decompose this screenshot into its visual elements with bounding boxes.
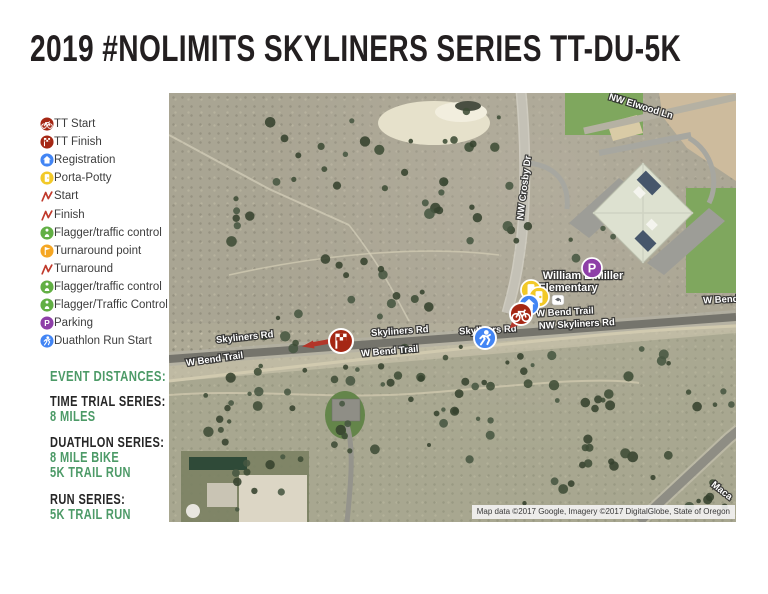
page-title: 2019 #NOLIMITS SKYLINERS SERIES TT-DU-5K — [30, 30, 768, 67]
legend-item: Start — [40, 187, 170, 205]
legend-item-label: Flagger/traffic control — [54, 227, 162, 239]
person-icon — [40, 280, 54, 294]
legend-item-label: TT Start — [54, 118, 95, 130]
legend-item-label: Turnaround point — [54, 245, 141, 257]
legend-item-label: Flagger/traffic control — [54, 281, 162, 293]
flag-icon — [40, 244, 54, 258]
legend-item-label: Finish — [54, 209, 85, 221]
school-poi-icon — [552, 295, 564, 305]
map-label: Skyliners Rd — [216, 329, 275, 346]
run-section: RUN SERIES: 5K TRAIL RUN — [50, 493, 180, 523]
legend-item: Flagger/Traffic Control — [40, 296, 170, 314]
runner-icon — [40, 334, 54, 348]
zigzag-icon — [40, 189, 54, 203]
legend-item-label: Porta-Potty — [54, 172, 112, 184]
tt-finish-marker — [329, 329, 353, 353]
legend-item-label: Registration — [54, 154, 115, 166]
legend-item: Flagger/traffic control — [40, 224, 170, 242]
checkered-flag-icon — [40, 135, 54, 149]
legend-item: Registration — [40, 151, 170, 169]
header: 2019 #NOLIMITS SKYLINERS SERIES TT-DU-5K… — [30, 28, 740, 68]
legend-item: Duathlon Run Start — [40, 332, 170, 350]
person-icon — [40, 226, 54, 240]
event-distances: EVENT DISTANCES: TIME TRIAL SERIES: 8 MI… — [50, 369, 180, 534]
bike-icon — [40, 117, 54, 131]
zigzag-icon — [40, 208, 54, 222]
legend-item-label: Duathlon Run Start — [54, 335, 152, 347]
porta-potty-icon — [40, 171, 54, 185]
satellite-map: NW Elwood LnNW Crosby DrSkyliners RdSkyl… — [169, 93, 736, 522]
svg-text:P: P — [588, 262, 597, 276]
legend-item: PParking — [40, 314, 170, 332]
tt-start-marker — [510, 303, 532, 325]
house-icon — [40, 153, 54, 167]
legend-item-label: Turnaround — [54, 263, 113, 275]
duathlon-section: DUATHLON SERIES: 8 MILE BIKE 5K TRAIL RU… — [50, 436, 180, 482]
legend-item: Turnaround — [40, 260, 170, 278]
duathlon-run-start-marker — [474, 327, 496, 349]
legend-item: TT Finish — [40, 133, 170, 151]
map-attribution: Map data ©2017 Google, Imagery ©2017 Dig… — [472, 505, 735, 519]
distances-heading: EVENT DISTANCES: — [50, 369, 180, 386]
legend-item: Finish — [40, 205, 170, 223]
legend-item: TT Start — [40, 115, 170, 133]
map-label: W Bend Trail — [703, 293, 736, 307]
time-trial-section: TIME TRIAL SERIES: 8 MILES — [50, 395, 180, 425]
legend-item: Porta-Potty — [40, 169, 170, 187]
parking-icon: P — [40, 316, 54, 330]
legend-item-label: Flagger/Traffic Control — [54, 299, 168, 311]
parking-marker: P — [582, 258, 602, 278]
legend-item: Turnaround point — [40, 242, 170, 260]
map-legend: TT StartTT FinishRegistrationPorta-Potty… — [40, 115, 170, 350]
legend-item-label: Parking — [54, 317, 93, 329]
legend-item-label: TT Finish — [54, 136, 102, 148]
legend-item: Flagger/traffic control — [40, 278, 170, 296]
svg-text:P: P — [44, 318, 50, 328]
zigzag-icon — [40, 262, 54, 276]
legend-item-label: Start — [54, 190, 78, 202]
person-icon — [40, 298, 54, 312]
